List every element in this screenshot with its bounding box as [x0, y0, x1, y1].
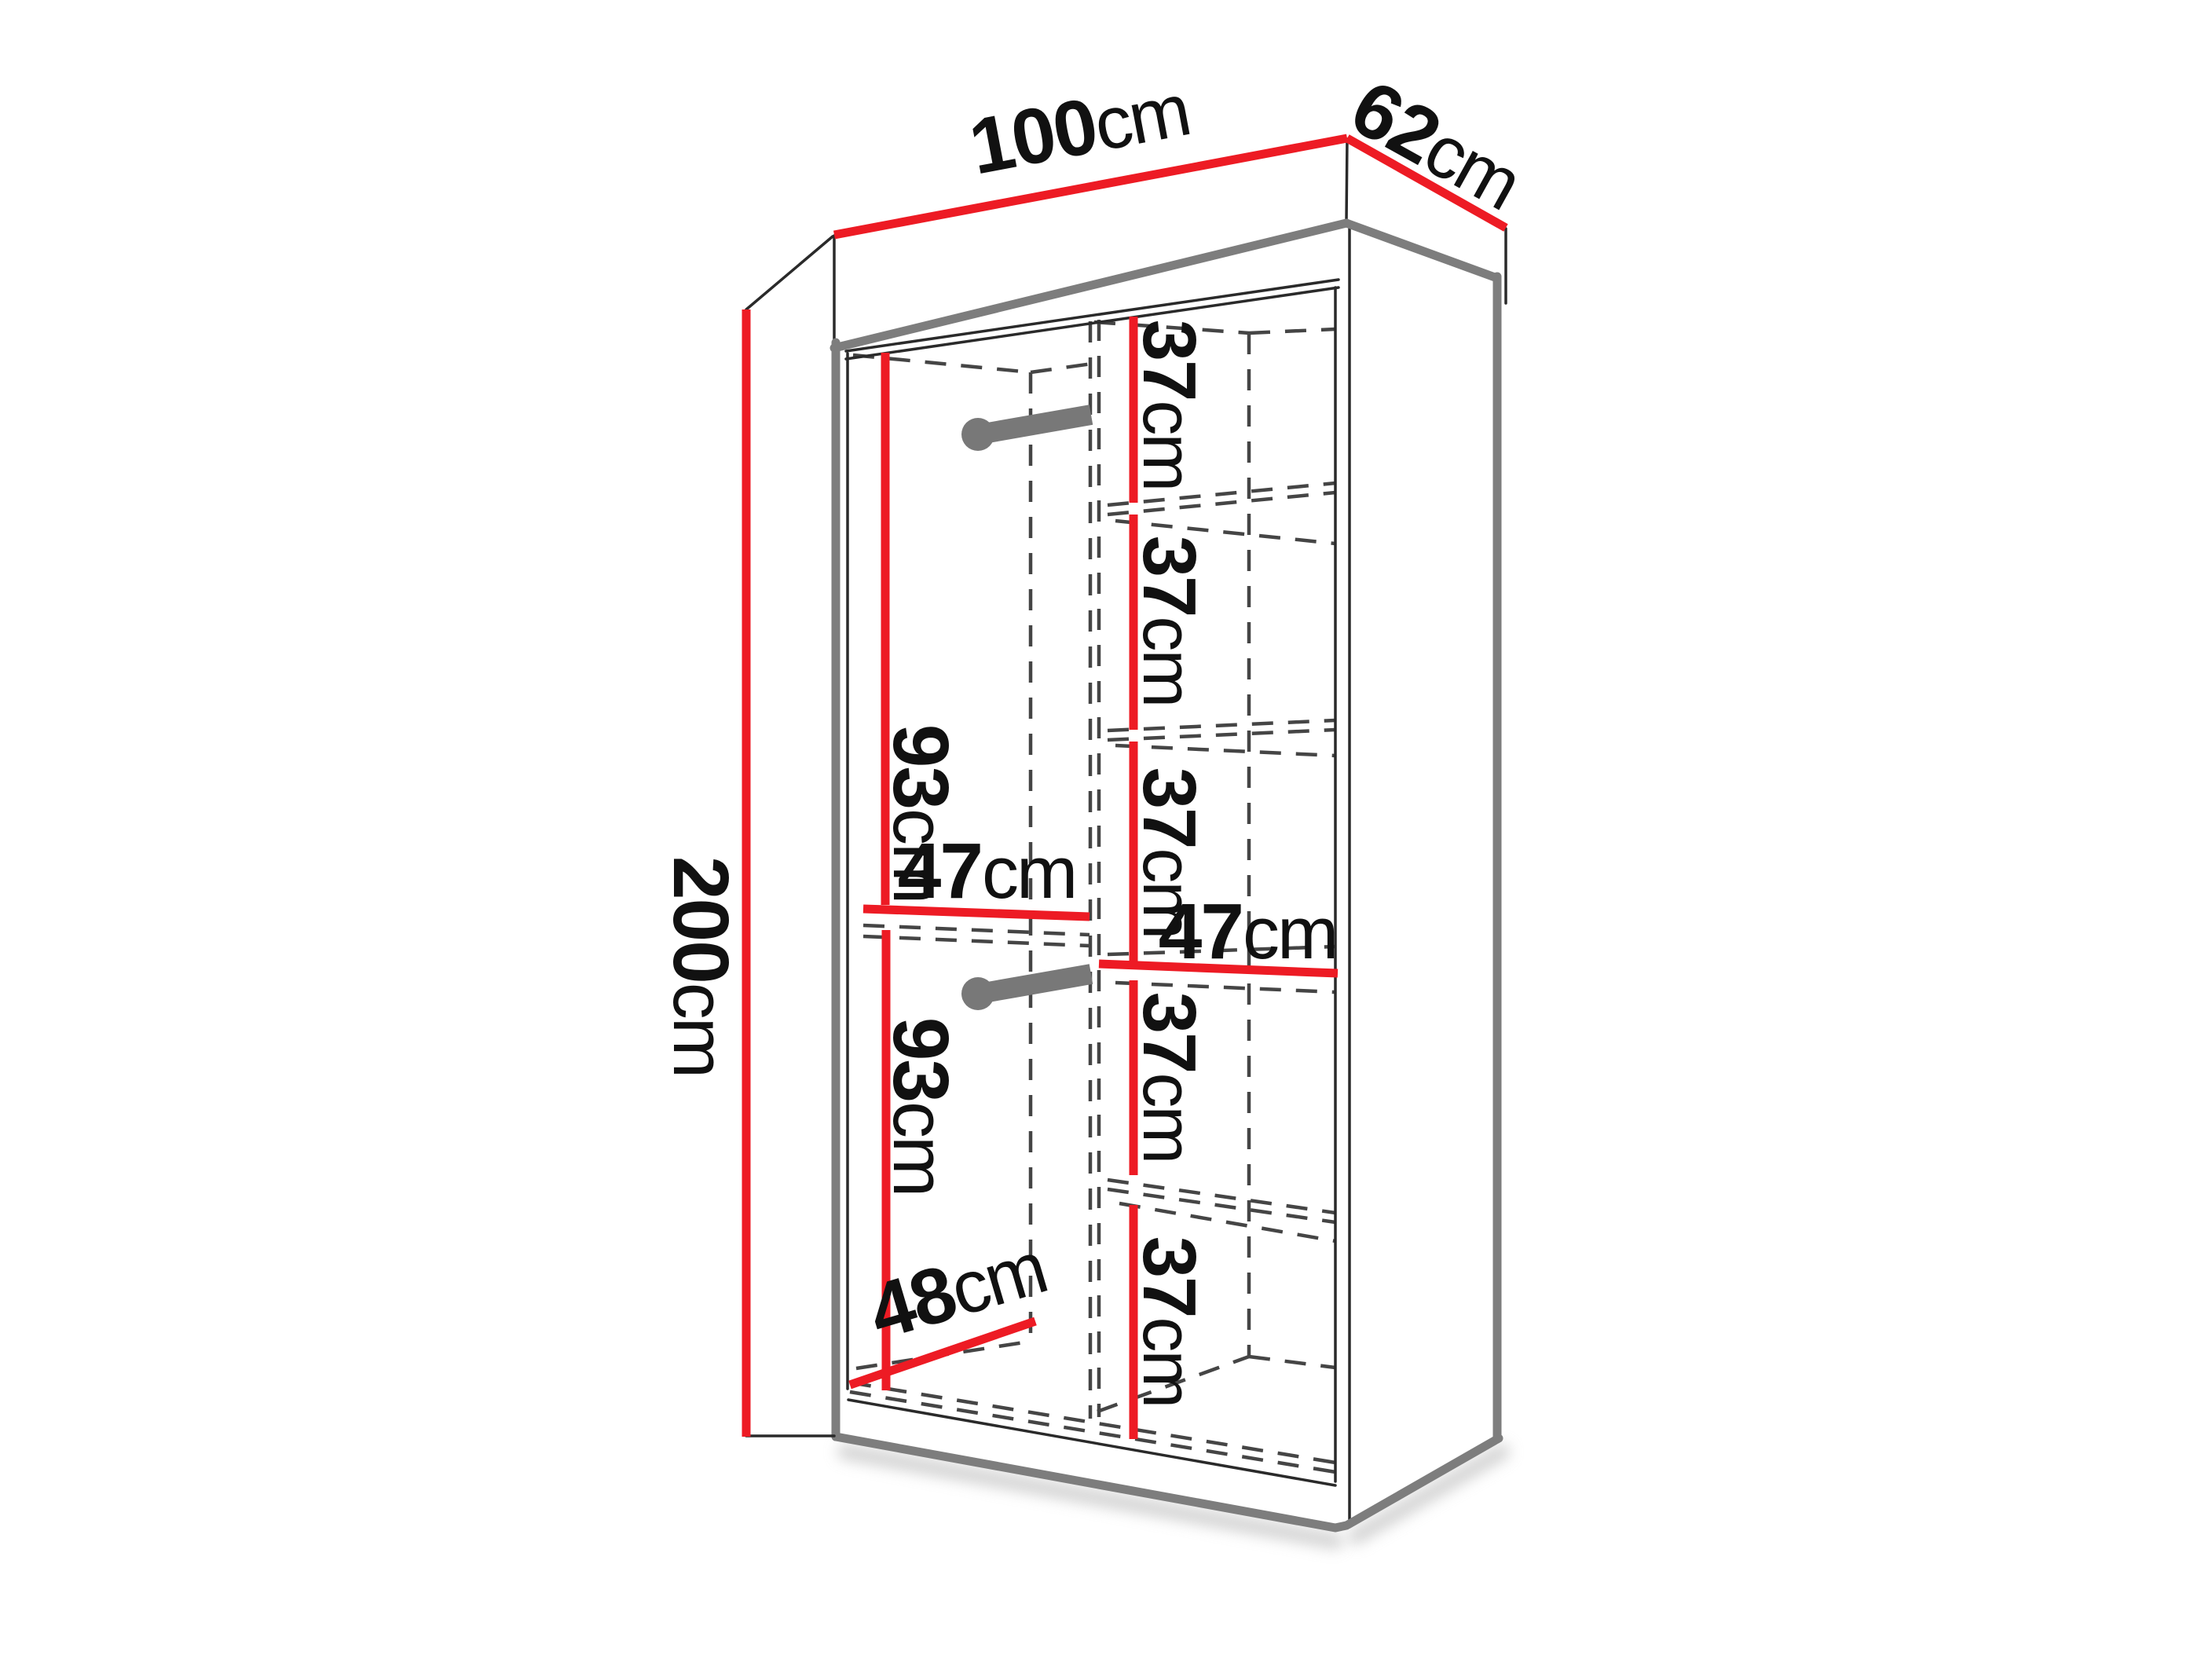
label-lower-93cm: 93cm: [877, 1017, 965, 1196]
rail-lower-end-cap: [961, 977, 994, 1010]
dim-tick-height-top: [746, 236, 833, 309]
label-shelf-gap-5: 37cm: [1127, 1236, 1211, 1407]
label-shelf-gap-1: 37cm: [1127, 320, 1211, 490]
label-shelf-gap-4: 37cm: [1127, 992, 1211, 1163]
diagram-canvas: 100cm 62cm 200cm 93cm 93cm 47cm 47cm 48c…: [0, 0, 2212, 1659]
rail-upper-end-cap: [961, 418, 994, 451]
label-mid-47cm: 47cm: [898, 827, 1076, 915]
label-shelf-gap-2: 37cm: [1127, 536, 1211, 706]
label-height-200cm: 200cm: [657, 856, 745, 1076]
top-panel-corner-edge: [1346, 139, 1347, 223]
carcass-right-face: [1346, 223, 1496, 1525]
label-shelf-gap-3: 37cm: [1127, 767, 1211, 938]
wardrobe-dimension-drawing: 100cm 62cm 200cm 93cm 93cm 47cm 47cm 48c…: [0, 0, 2212, 1659]
